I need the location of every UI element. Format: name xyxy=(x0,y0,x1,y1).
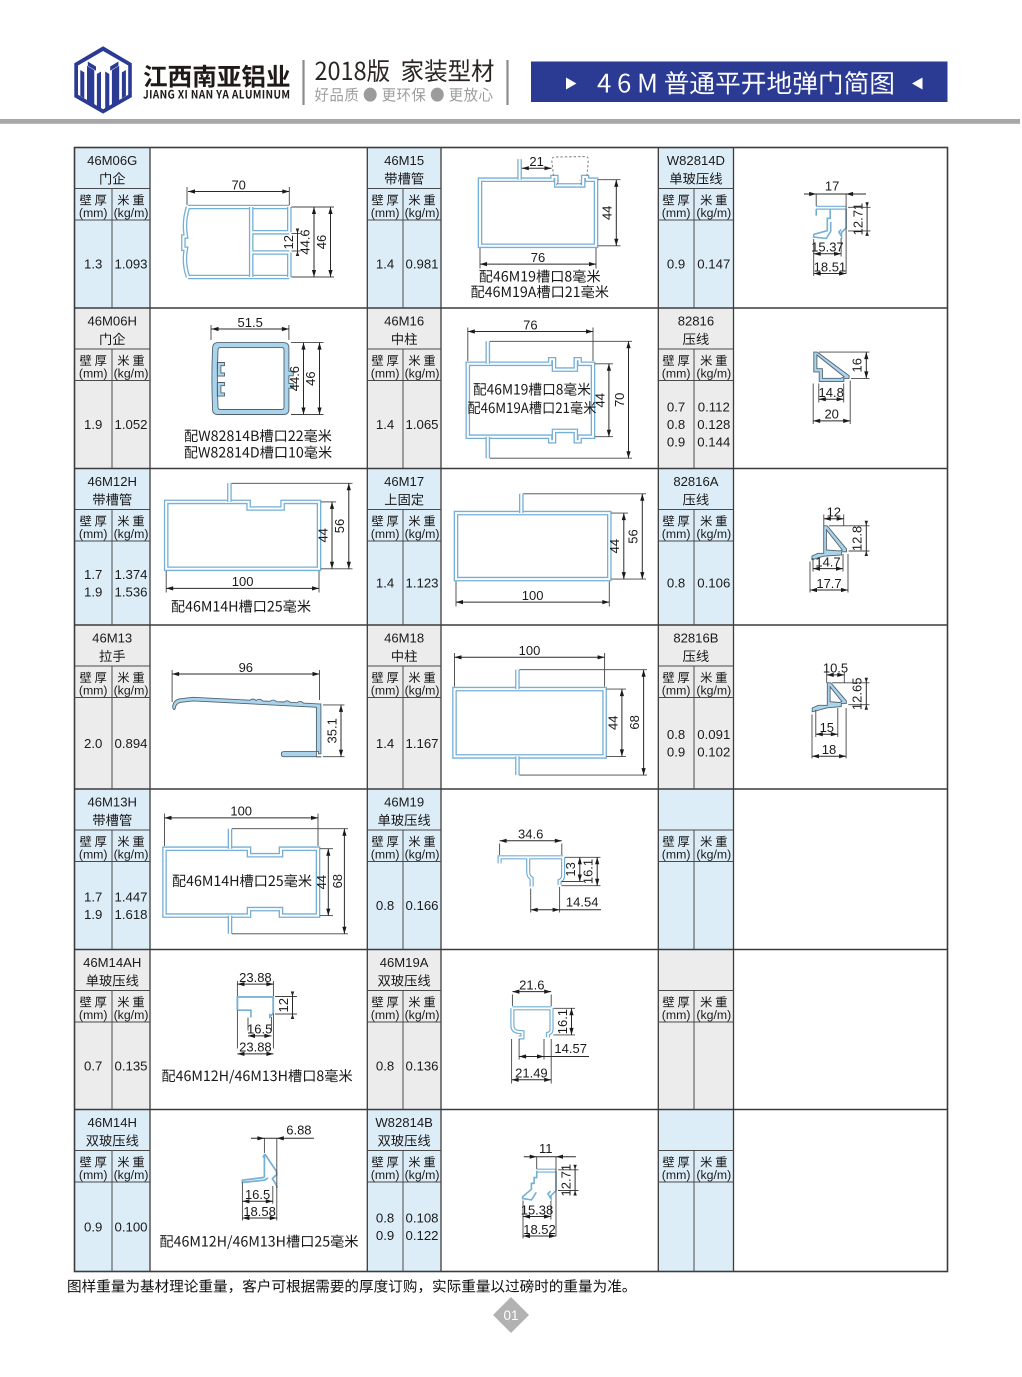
svg-text:(mm): (mm) xyxy=(371,1168,400,1182)
svg-text:12.71: 12.71 xyxy=(559,1164,574,1197)
svg-text:46: 46 xyxy=(303,371,318,385)
svg-text:0.135: 0.135 xyxy=(114,1058,147,1073)
svg-text:1.065: 1.065 xyxy=(405,417,438,432)
svg-text:1.7: 1.7 xyxy=(84,567,102,582)
svg-text:56: 56 xyxy=(626,529,641,543)
svg-text:21.6: 21.6 xyxy=(519,977,544,992)
svg-text:35.1: 35.1 xyxy=(324,718,339,743)
svg-text:0.147: 0.147 xyxy=(697,257,730,272)
svg-text:14.54: 14.54 xyxy=(566,894,599,909)
svg-text:2.0: 2.0 xyxy=(84,736,102,751)
svg-text:(kg/m): (kg/m) xyxy=(696,206,731,220)
svg-text:0.122: 0.122 xyxy=(405,1228,438,1243)
svg-text:(mm): (mm) xyxy=(662,848,691,862)
svg-text:(mm): (mm) xyxy=(371,367,400,381)
svg-text:46M18: 46M18 xyxy=(384,631,424,646)
svg-text:70: 70 xyxy=(231,177,245,192)
svg-text:17.7: 17.7 xyxy=(816,576,841,591)
svg-text:0.144: 0.144 xyxy=(697,435,730,450)
svg-text:0.102: 0.102 xyxy=(697,745,730,760)
svg-text:12.8: 12.8 xyxy=(850,526,865,551)
svg-text:13: 13 xyxy=(563,862,578,876)
svg-text:1.4: 1.4 xyxy=(376,576,394,591)
svg-text:12: 12 xyxy=(276,998,291,1012)
svg-text:(mm): (mm) xyxy=(662,1008,691,1022)
svg-text:0.981: 0.981 xyxy=(405,257,438,272)
svg-text:100: 100 xyxy=(522,588,544,603)
svg-text:(kg/m): (kg/m) xyxy=(114,206,149,220)
svg-text:(kg/m): (kg/m) xyxy=(696,367,731,381)
svg-text:12.71: 12.71 xyxy=(851,203,866,236)
svg-text:(mm): (mm) xyxy=(79,367,108,381)
svg-text:(kg/m): (kg/m) xyxy=(114,1168,149,1182)
svg-text:56: 56 xyxy=(332,519,347,533)
svg-text:46M12H: 46M12H xyxy=(87,474,137,489)
svg-text:1.052: 1.052 xyxy=(114,417,147,432)
svg-text:0.7: 0.7 xyxy=(667,400,685,415)
svg-text:15.38: 15.38 xyxy=(521,1202,554,1217)
svg-text:(mm): (mm) xyxy=(79,1168,108,1182)
svg-text:46M13H: 46M13H xyxy=(87,795,137,810)
svg-text:11: 11 xyxy=(539,1141,553,1156)
svg-text:0.100: 0.100 xyxy=(114,1219,147,1234)
svg-text:(kg/m): (kg/m) xyxy=(114,848,149,862)
svg-text:W82814B: W82814B xyxy=(375,1115,433,1130)
svg-text:16.5: 16.5 xyxy=(247,1022,272,1037)
svg-text:0.8: 0.8 xyxy=(667,576,685,591)
svg-text:0.7: 0.7 xyxy=(84,1058,102,1073)
svg-text:68: 68 xyxy=(330,874,345,888)
svg-text:23.88: 23.88 xyxy=(239,970,272,985)
svg-text:15: 15 xyxy=(820,720,834,735)
svg-text:(kg/m): (kg/m) xyxy=(114,684,149,698)
svg-text:0.128: 0.128 xyxy=(697,417,730,432)
svg-text:46M13: 46M13 xyxy=(92,631,132,646)
svg-text:1.9: 1.9 xyxy=(84,907,102,922)
svg-text:(mm): (mm) xyxy=(79,206,108,220)
svg-text:23.88: 23.88 xyxy=(239,1040,272,1055)
svg-text:0.8: 0.8 xyxy=(667,417,685,432)
svg-text:1.374: 1.374 xyxy=(114,567,147,582)
svg-text:0.9: 0.9 xyxy=(84,1219,102,1234)
svg-text:0.8: 0.8 xyxy=(376,1211,394,1226)
svg-text:100: 100 xyxy=(232,574,254,589)
svg-text:18: 18 xyxy=(822,742,836,757)
svg-text:0.106: 0.106 xyxy=(697,576,730,591)
svg-text:0.9: 0.9 xyxy=(667,745,685,760)
svg-text:18.58: 18.58 xyxy=(243,1204,276,1219)
svg-text:100: 100 xyxy=(230,804,252,819)
svg-text:15.37: 15.37 xyxy=(811,240,844,255)
svg-text:14.7: 14.7 xyxy=(815,554,840,569)
svg-text:0.166: 0.166 xyxy=(405,898,438,913)
svg-text:21.49: 21.49 xyxy=(515,1066,548,1081)
svg-text:46M06H: 46M06H xyxy=(87,314,137,329)
svg-text:1.093: 1.093 xyxy=(114,257,147,272)
svg-text:6.88: 6.88 xyxy=(286,1123,311,1138)
svg-text:14.8: 14.8 xyxy=(819,385,844,400)
svg-text:1.123: 1.123 xyxy=(405,576,438,591)
svg-text:96: 96 xyxy=(239,660,253,675)
svg-text:(kg/m): (kg/m) xyxy=(405,527,440,541)
svg-text:(mm): (mm) xyxy=(79,684,108,698)
svg-text:(kg/m): (kg/m) xyxy=(114,1008,149,1022)
svg-text:44: 44 xyxy=(605,716,620,730)
svg-text:18.51: 18.51 xyxy=(814,259,847,274)
svg-text:(kg/m): (kg/m) xyxy=(405,367,440,381)
svg-text:1.167: 1.167 xyxy=(405,736,438,751)
svg-text:44.6: 44.6 xyxy=(297,229,312,254)
svg-text:0.112: 0.112 xyxy=(698,400,730,415)
svg-text:(kg/m): (kg/m) xyxy=(114,367,149,381)
svg-text:0.136: 0.136 xyxy=(405,1058,438,1073)
svg-text:46M16: 46M16 xyxy=(384,314,424,329)
svg-text:1.7: 1.7 xyxy=(84,889,102,904)
svg-text:12: 12 xyxy=(827,505,841,520)
svg-text:(mm): (mm) xyxy=(662,206,691,220)
svg-text:76: 76 xyxy=(531,250,545,265)
svg-text:(mm): (mm) xyxy=(371,684,400,698)
svg-text:44: 44 xyxy=(592,393,607,407)
svg-text:82816A: 82816A xyxy=(673,474,718,489)
svg-text:(mm): (mm) xyxy=(662,1168,691,1182)
svg-text:21: 21 xyxy=(529,154,543,169)
svg-text:(mm): (mm) xyxy=(371,206,400,220)
svg-text:(mm): (mm) xyxy=(79,848,108,862)
svg-text:0.9: 0.9 xyxy=(667,257,685,272)
svg-text:1.4: 1.4 xyxy=(376,257,394,272)
svg-text:20: 20 xyxy=(824,407,838,422)
svg-text:44: 44 xyxy=(314,875,329,889)
svg-text:0.8: 0.8 xyxy=(376,1058,394,1073)
svg-text:1.447: 1.447 xyxy=(114,889,147,904)
svg-text:46M19A: 46M19A xyxy=(380,955,429,970)
svg-text:0.8: 0.8 xyxy=(667,727,685,742)
svg-text:0.9: 0.9 xyxy=(667,435,685,450)
svg-text:68: 68 xyxy=(627,715,642,729)
svg-text:46: 46 xyxy=(314,235,329,249)
svg-text:46M14H: 46M14H xyxy=(87,1115,137,1130)
svg-text:(mm): (mm) xyxy=(662,684,691,698)
svg-text:(kg/m): (kg/m) xyxy=(405,1008,440,1022)
svg-text:(kg/m): (kg/m) xyxy=(696,684,731,698)
svg-text:18.52: 18.52 xyxy=(523,1222,556,1237)
svg-text:(kg/m): (kg/m) xyxy=(405,1168,440,1182)
svg-text:(kg/m): (kg/m) xyxy=(405,206,440,220)
svg-text:100: 100 xyxy=(519,643,541,658)
svg-text:0.894: 0.894 xyxy=(114,736,147,751)
svg-text:10.5: 10.5 xyxy=(823,661,848,676)
svg-text:1.3: 1.3 xyxy=(84,257,102,272)
svg-text:1.9: 1.9 xyxy=(84,417,102,432)
svg-text:(mm): (mm) xyxy=(662,527,691,541)
svg-text:16.1: 16.1 xyxy=(581,859,596,884)
svg-text:16: 16 xyxy=(850,358,865,372)
svg-text:76: 76 xyxy=(523,317,537,332)
svg-text:0.9: 0.9 xyxy=(376,1228,394,1243)
svg-text:(kg/m): (kg/m) xyxy=(696,1008,731,1022)
svg-text:12: 12 xyxy=(281,235,296,249)
svg-text:1.4: 1.4 xyxy=(376,417,394,432)
svg-text:(mm): (mm) xyxy=(371,527,400,541)
svg-text:01: 01 xyxy=(503,1308,518,1323)
svg-text:(kg/m): (kg/m) xyxy=(405,848,440,862)
svg-text:0.091: 0.091 xyxy=(697,727,730,742)
svg-text:44: 44 xyxy=(315,528,330,542)
svg-text:0.108: 0.108 xyxy=(405,1211,438,1226)
svg-text:(kg/m): (kg/m) xyxy=(696,1168,731,1182)
svg-text:51.5: 51.5 xyxy=(238,315,263,330)
svg-text:14.57: 14.57 xyxy=(554,1041,587,1056)
svg-text:(mm): (mm) xyxy=(371,848,400,862)
svg-text:12.65: 12.65 xyxy=(850,678,865,711)
svg-text:44: 44 xyxy=(607,539,622,553)
svg-text:46M15: 46M15 xyxy=(384,153,424,168)
svg-text:(kg/m): (kg/m) xyxy=(114,527,149,541)
svg-text:1.536: 1.536 xyxy=(114,584,147,599)
svg-text:82816B: 82816B xyxy=(673,631,718,646)
svg-text:16.5: 16.5 xyxy=(245,1187,270,1202)
svg-text:(mm): (mm) xyxy=(79,1008,108,1022)
svg-text:W82814D: W82814D xyxy=(667,153,725,168)
svg-text:17: 17 xyxy=(825,178,839,193)
svg-text:82816: 82816 xyxy=(678,314,714,329)
svg-text:16.1: 16.1 xyxy=(555,1009,570,1034)
svg-text:46M17: 46M17 xyxy=(384,474,424,489)
svg-text:0.8: 0.8 xyxy=(376,898,394,913)
svg-text:34.6: 34.6 xyxy=(518,827,543,842)
svg-text:(kg/m): (kg/m) xyxy=(696,527,731,541)
svg-text:46M06G: 46M06G xyxy=(87,153,137,168)
svg-text:1.9: 1.9 xyxy=(84,584,102,599)
svg-text:46M14AH: 46M14AH xyxy=(83,955,141,970)
svg-text:(mm): (mm) xyxy=(79,527,108,541)
svg-text:(kg/m): (kg/m) xyxy=(405,684,440,698)
svg-text:(kg/m): (kg/m) xyxy=(696,848,731,862)
svg-text:(mm): (mm) xyxy=(662,367,691,381)
svg-text:1.618: 1.618 xyxy=(114,907,147,922)
svg-text:44: 44 xyxy=(600,206,615,220)
svg-text:1.4: 1.4 xyxy=(376,736,394,751)
svg-text:(mm): (mm) xyxy=(371,1008,400,1022)
svg-text:70: 70 xyxy=(612,393,627,407)
svg-text:44.6: 44.6 xyxy=(287,366,302,391)
svg-text:46M19: 46M19 xyxy=(384,795,424,810)
